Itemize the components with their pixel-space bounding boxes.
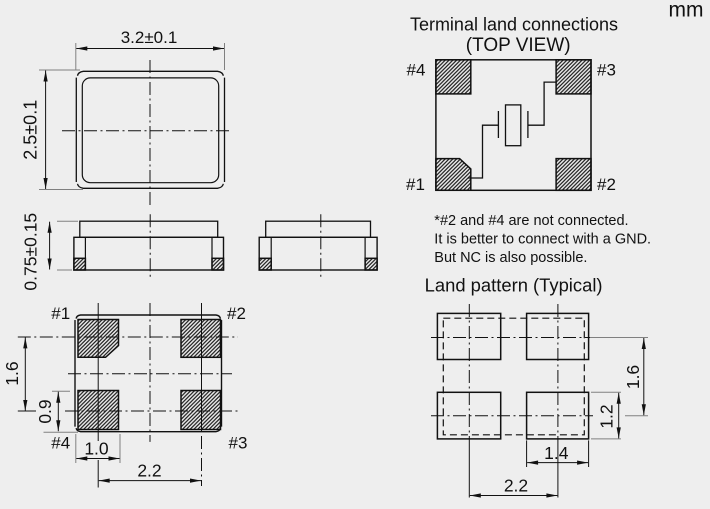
- svg-text:2.5±0.1: 2.5±0.1: [20, 100, 40, 160]
- svg-text:#4: #4: [407, 61, 426, 80]
- svg-text:It is better to connect with a: It is better to connect with a GND.: [434, 232, 651, 248]
- svg-text:But NC is also possible.: But NC is also possible.: [434, 250, 587, 266]
- svg-text:1.0: 1.0: [84, 439, 109, 459]
- svg-text:1.6: 1.6: [2, 361, 22, 385]
- svg-text:#3: #3: [229, 434, 248, 453]
- svg-text:0.9: 0.9: [35, 399, 55, 423]
- svg-text:#3: #3: [597, 61, 616, 80]
- svg-text:3.2±0.1: 3.2±0.1: [121, 28, 178, 47]
- svg-text:Land pattern (Typical): Land pattern (Typical): [425, 275, 603, 296]
- svg-text:mm: mm: [669, 0, 704, 21]
- svg-text:Terminal land connections: Terminal land connections: [410, 14, 618, 34]
- svg-text:0.75±0.15: 0.75±0.15: [20, 213, 40, 291]
- svg-text:#2: #2: [227, 304, 246, 323]
- svg-text:1.2: 1.2: [597, 404, 617, 428]
- svg-text:2.2: 2.2: [137, 461, 161, 481]
- svg-text:1.4: 1.4: [544, 443, 569, 463]
- svg-text:#1: #1: [51, 304, 70, 323]
- svg-text:*#2 and #4 are not connected.: *#2 and #4 are not connected.: [434, 213, 628, 229]
- svg-text:#4: #4: [51, 434, 70, 453]
- svg-text:2.2: 2.2: [504, 476, 528, 496]
- svg-text:(TOP VIEW): (TOP VIEW): [466, 35, 571, 56]
- svg-text:#1: #1: [406, 175, 425, 194]
- svg-text:1.6: 1.6: [623, 365, 643, 389]
- svg-text:#2: #2: [597, 175, 616, 194]
